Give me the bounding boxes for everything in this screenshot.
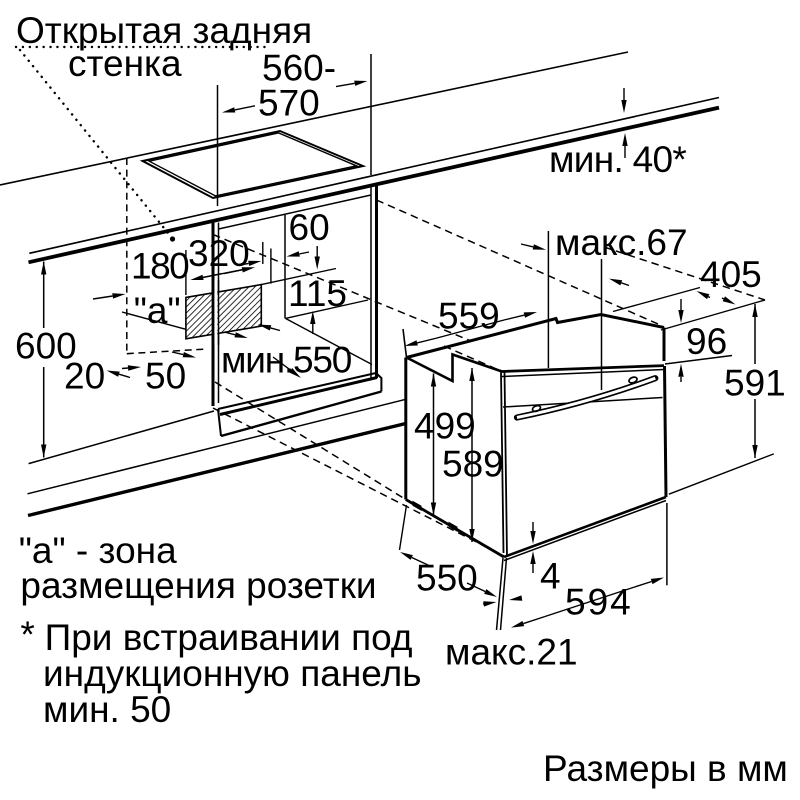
svg-text:мин. 50: мин. 50 [43, 689, 171, 730]
svg-text:мин.550: мин.550 [221, 340, 352, 381]
svg-text:"a": "a" [134, 290, 181, 331]
svg-text:499: 499 [414, 406, 476, 447]
svg-text:При встраивании под: При встраивании под [45, 617, 413, 658]
svg-text:180: 180 [131, 246, 189, 287]
svg-text:60: 60 [289, 207, 330, 248]
svg-text:стенка: стенка [68, 43, 182, 84]
svg-text:96: 96 [686, 321, 727, 362]
svg-text:550: 550 [416, 558, 478, 599]
svg-text:4: 4 [540, 556, 561, 597]
svg-text:мин. 40*: мин. 40* [549, 139, 686, 180]
svg-text:20: 20 [64, 356, 105, 397]
svg-text:559: 559 [438, 296, 500, 337]
svg-text:570: 570 [258, 83, 320, 124]
svg-text:50: 50 [145, 356, 186, 397]
svg-text:115: 115 [288, 273, 347, 314]
svg-text:Размеры в мм: Размеры в мм [543, 748, 788, 789]
svg-text:589: 589 [442, 444, 504, 485]
svg-text:594: 594 [565, 582, 633, 623]
svg-text:*: * [20, 614, 34, 655]
svg-text:320: 320 [188, 233, 250, 274]
svg-text:591: 591 [724, 363, 786, 404]
svg-text:405: 405 [700, 254, 762, 295]
svg-text:индукционную панель: индукционную панель [43, 653, 421, 694]
svg-text:макс.67: макс.67 [555, 222, 688, 263]
svg-text:размещения розетки: размещения розетки [20, 565, 376, 606]
svg-text:макс.21: макс.21 [445, 632, 578, 673]
